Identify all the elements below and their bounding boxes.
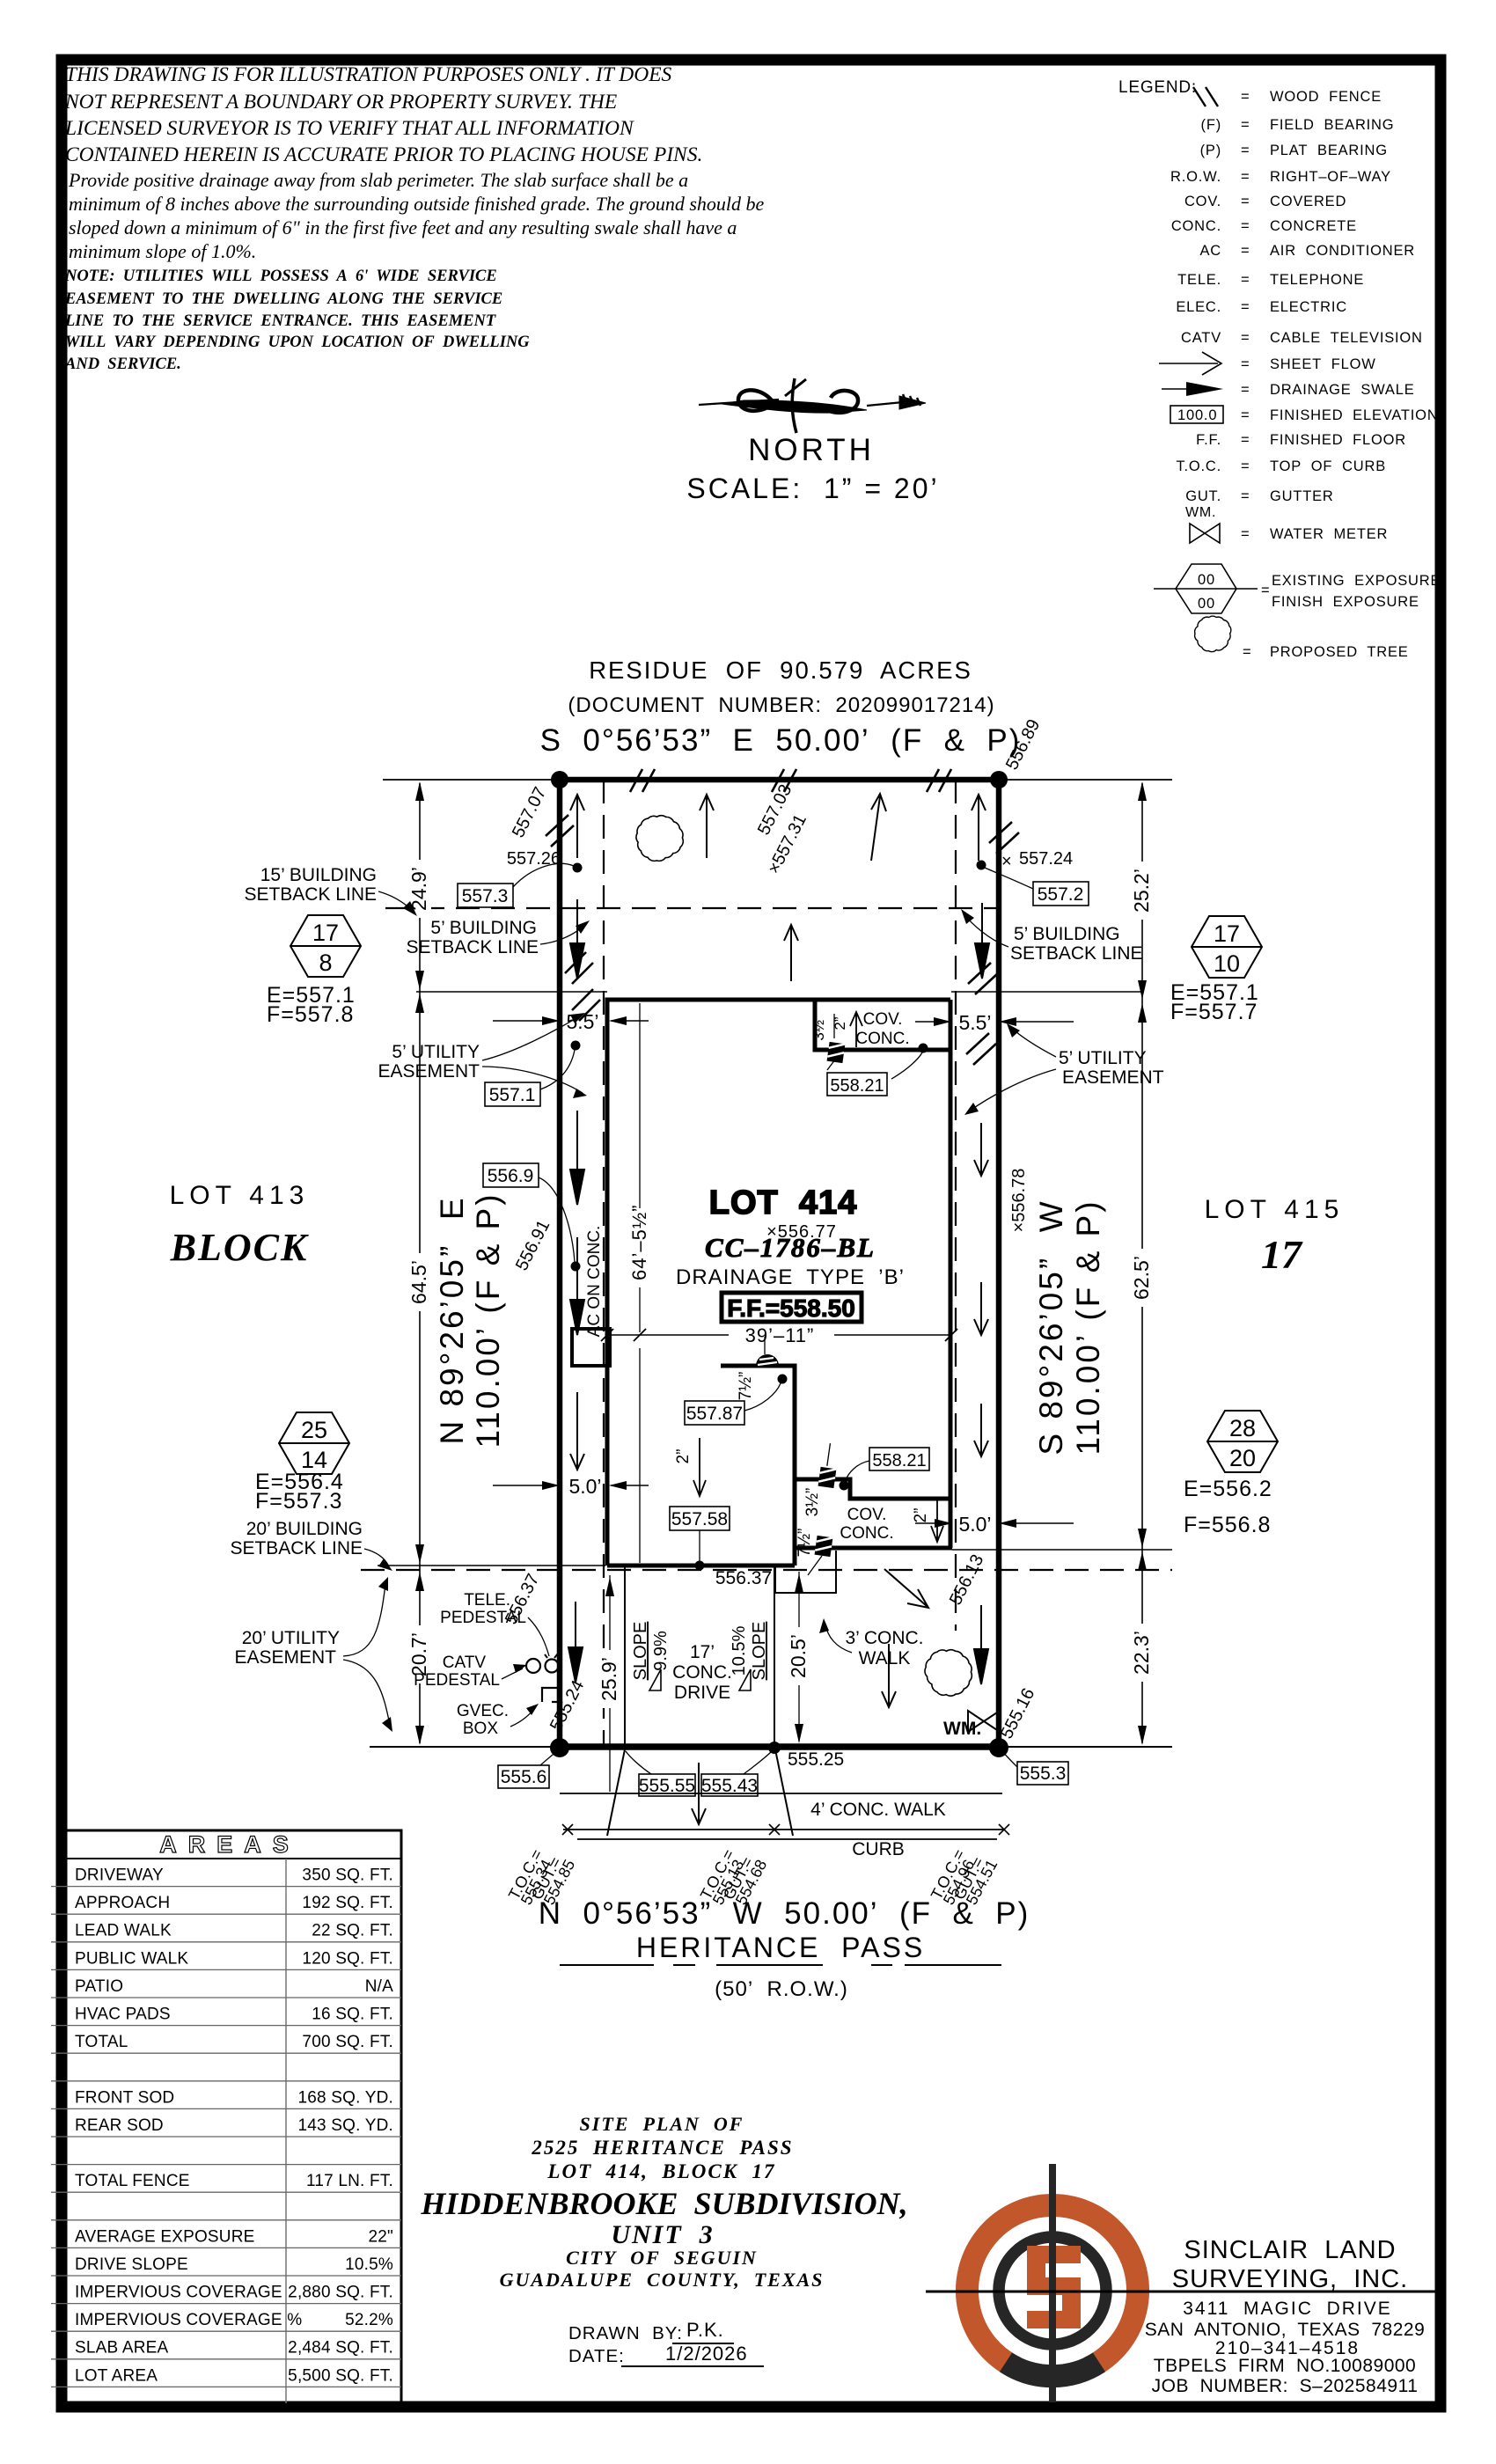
svg-text:TELE.: TELE. (1177, 272, 1221, 288)
svg-text:COV.: COV. (863, 1010, 903, 1029)
svg-text:HVAC PADS: HVAC PADS (75, 2006, 171, 2024)
svg-text:WM.: WM. (1185, 505, 1216, 520)
svg-text:E=556.2: E=556.2 (1184, 1477, 1272, 1501)
svg-text:20.7’: 20.7’ (407, 1632, 430, 1676)
svg-text:=: = (1241, 89, 1250, 105)
svg-text:16 SQ. FT.: 16 SQ. FT. (312, 2006, 393, 2024)
svg-text:=: = (1241, 243, 1250, 259)
svg-text:AC: AC (1199, 243, 1221, 259)
svg-text:N 89°26’05” E: N 89°26’05” E (434, 1195, 470, 1444)
svg-text:BLOCK: BLOCK (170, 1226, 309, 1269)
svg-text:52.2%: 52.2% (345, 2311, 393, 2329)
svg-text:T.O.C.: T.O.C. (1176, 458, 1221, 474)
svg-text:UNIT 3: UNIT 3 (611, 2220, 714, 2249)
svg-text:PROPOSED TREE: PROPOSED TREE (1270, 644, 1409, 660)
svg-text:GUADALUPE COUNTY, TEXAS: GUADALUPE COUNTY, TEXAS (500, 2269, 825, 2291)
svg-text:DRAINAGE SWALE: DRAINAGE SWALE (1270, 382, 1415, 398)
svg-text:192 SQ. FT.: 192 SQ. FT. (302, 1894, 393, 1912)
svg-text:AIR CONDITIONER: AIR CONDITIONER (1270, 243, 1415, 259)
svg-text:=: = (1243, 644, 1251, 660)
svg-text:HIDDENBROOKE SUBDIVISION,: HIDDENBROOKE SUBDIVISION, (420, 2186, 907, 2221)
svg-text:GVEC.: GVEC. (457, 1702, 509, 1720)
svg-text:EASEMENT: EASEMENT (234, 1647, 336, 1668)
svg-text:8: 8 (319, 950, 332, 976)
svg-text:CURB: CURB (852, 1839, 905, 1859)
svg-text:64’–5½”: 64’–5½” (628, 1204, 650, 1280)
svg-text:10.5%: 10.5% (345, 2255, 393, 2274)
svg-text:IMPERVIOUS COVERAGE: IMPERVIOUS COVERAGE (75, 2284, 282, 2302)
svg-text:558.21: 558.21 (872, 1451, 926, 1470)
svg-text:SHEET FLOW: SHEET FLOW (1270, 356, 1376, 372)
svg-text:LOT AREA: LOT AREA (75, 2366, 158, 2385)
svg-text:NORTH: NORTH (748, 433, 875, 467)
svg-text:25.2’: 25.2’ (1130, 869, 1153, 913)
svg-text:AND SERVICE.: AND SERVICE. (64, 356, 181, 373)
svg-text:CONC.: CONC. (855, 1030, 909, 1048)
svg-text:PEDESTAL: PEDESTAL (414, 1671, 500, 1690)
svg-text:AVERAGE EXPOSURE: AVERAGE EXPOSURE (75, 2227, 255, 2246)
svg-text:LOT 414: LOT 414 (709, 1184, 858, 1221)
svg-text:556.9: 556.9 (488, 1166, 534, 1186)
svg-text:2”: 2” (674, 1449, 693, 1464)
svg-text:5’ UTILITY: 5’ UTILITY (392, 1042, 480, 1062)
svg-text:120 SQ. FT.: 120 SQ. FT. (302, 1949, 393, 1968)
svg-text:SLOPE: SLOPE (750, 1622, 769, 1681)
svg-text:143 SQ. YD.: 143 SQ. YD. (297, 2116, 393, 2135)
svg-text:557.1: 557.1 (489, 1085, 536, 1105)
svg-text:F=557.3: F=557.3 (255, 1489, 342, 1514)
svg-text:COV.: COV. (847, 1506, 887, 1524)
svg-text:00: 00 (1198, 572, 1215, 588)
svg-text:CONC.: CONC. (672, 1662, 732, 1683)
svg-text:SETBACK LINE: SETBACK LINE (1010, 943, 1143, 964)
svg-text:10.5%: 10.5% (730, 1625, 749, 1676)
svg-text:=: = (1241, 356, 1250, 372)
svg-text:28: 28 (1229, 1415, 1256, 1441)
svg-text:LEGEND:: LEGEND: (1118, 78, 1197, 97)
svg-text:SLAB AREA: SLAB AREA (75, 2339, 168, 2358)
svg-text:RESIDUE OF 90.579 ACRES: RESIDUE OF 90.579 ACRES (589, 656, 972, 684)
svg-text:555.3: 555.3 (1020, 1764, 1067, 1784)
svg-text:FIELD BEARING: FIELD BEARING (1270, 117, 1394, 133)
svg-text:SETBACK LINE: SETBACK LINE (244, 884, 377, 905)
svg-text:558.21: 558.21 (830, 1076, 884, 1096)
svg-text:DRIVE: DRIVE (674, 1683, 730, 1703)
svg-text:minimum slope of 1.0%.: minimum slope of 1.0%. (69, 240, 256, 262)
svg-text:(F): (F) (1201, 117, 1221, 133)
svg-text:TOP OF CURB: TOP OF CURB (1270, 458, 1386, 474)
svg-text:5.5’: 5.5’ (958, 1011, 991, 1034)
svg-text:WILL VARY DEPENDING UPON L: WILL VARY DEPENDING UPON LOCATION OF DWE… (65, 334, 530, 351)
svg-text:SINCLAIR LAND: SINCLAIR LAND (1184, 2236, 1396, 2264)
svg-text:4’ CONC. WALK: 4’ CONC. WALK (810, 1800, 946, 1820)
svg-text:WM.: WM. (943, 1719, 981, 1739)
svg-text:=: = (1241, 407, 1250, 423)
svg-text:5.0’: 5.0’ (958, 1513, 991, 1536)
svg-text:=: = (1241, 143, 1250, 158)
svg-text:SCALE: 1” = 20’: SCALE: 1” = 20’ (686, 473, 939, 504)
svg-text:FRONT SOD: FRONT SOD (75, 2088, 174, 2107)
svg-text:25.9’: 25.9’ (598, 1657, 620, 1701)
svg-text:PATIO: PATIO (75, 1977, 123, 1996)
svg-text:CABLE TELEVISION: CABLE TELEVISION (1270, 330, 1423, 346)
svg-text:F.F.: F.F. (1196, 432, 1221, 448)
svg-text:HERITANCE PASS: HERITANCE PASS (636, 1932, 925, 1963)
svg-text:DRAINAGE TYPE ’B’: DRAINAGE TYPE ’B’ (676, 1265, 905, 1289)
svg-text:557.3: 557.3 (462, 886, 509, 906)
svg-text:555.6: 555.6 (501, 1767, 547, 1787)
svg-text:00: 00 (1198, 596, 1215, 612)
svg-text:=: = (1241, 432, 1250, 448)
svg-text:GUT.: GUT. (1185, 488, 1221, 504)
svg-text:JOB NUMBER: S–202584911: JOB NUMBER: S–202584911 (1152, 2376, 1419, 2396)
svg-text:P.K.: P.K. (686, 2319, 724, 2341)
svg-text:TELE.: TELE. (464, 1591, 510, 1610)
svg-text:F.F.=558.50: F.F.=558.50 (727, 1294, 855, 1322)
svg-text:S 0°56’53” E 50.00’ (F &: S 0°56’53” E 50.00’ (F & P) (540, 723, 1022, 758)
svg-text:CONC.: CONC. (840, 1524, 893, 1543)
svg-text:WOOD FENCE: WOOD FENCE (1270, 89, 1382, 105)
svg-text:20’ BUILDING: 20’ BUILDING (246, 1519, 363, 1539)
svg-text:ELEC.: ELEC. (1176, 299, 1221, 315)
svg-text:3½”: 3½” (803, 1488, 822, 1517)
svg-text:SLOPE: SLOPE (631, 1622, 650, 1681)
svg-text:117 LN. FT.: 117 LN. FT. (306, 2172, 393, 2190)
svg-text:IMPERVIOUS COVERAGE %: IMPERVIOUS COVERAGE % (75, 2311, 302, 2329)
svg-text:15’ BUILDING: 15’ BUILDING (260, 865, 377, 885)
svg-text:LICENSED SURVEYOR IS TO VERIFY: LICENSED SURVEYOR IS TO VERIFY THAT ALL … (64, 117, 634, 140)
svg-text:CITY OF SEGUIN: CITY OF SEGUIN (566, 2247, 758, 2269)
svg-text:2525 HERITANCE PASS: 2525 HERITANCE PASS (531, 2137, 793, 2159)
svg-text:DRAWN BY:: DRAWN BY: (568, 2323, 683, 2343)
svg-text:(DOCUMENT NUMBER: 2020990172: (DOCUMENT NUMBER: 202099017214) (568, 693, 994, 717)
svg-text:PLAT BEARING: PLAT BEARING (1270, 143, 1388, 158)
svg-text:557.2: 557.2 (1038, 884, 1084, 905)
svg-text:ELECTRIC: ELECTRIC (1270, 299, 1347, 315)
svg-text:22 SQ. FT.: 22 SQ. FT. (312, 1922, 393, 1940)
svg-text:PUBLIC WALK: PUBLIC WALK (75, 1949, 188, 1968)
svg-text:CONTAINED HEREIN IS ACCURATE P: CONTAINED HEREIN IS ACCURATE PRIOR TO PL… (65, 143, 702, 166)
svg-text:SETBACK LINE: SETBACK LINE (230, 1538, 363, 1558)
svg-text:FINISHED ELEVATION: FINISHED ELEVATION (1270, 407, 1439, 423)
svg-text:APPROACH: APPROACH (75, 1894, 170, 1912)
svg-text:2”: 2” (912, 1508, 930, 1523)
svg-text:350 SQ. FT.: 350 SQ. FT. (302, 1866, 393, 1885)
svg-text:557.87: 557.87 (686, 1404, 743, 1424)
svg-text:5’ UTILITY: 5’ UTILITY (1059, 1048, 1147, 1068)
svg-text:2,880 SQ. FT.: 2,880 SQ. FT. (288, 2284, 393, 2302)
svg-text:7½”: 7½” (737, 1372, 755, 1401)
svg-text:EASEMENT TO THE DWELLING A: EASEMENT TO THE DWELLING ALONG THE SERVI… (64, 290, 502, 308)
svg-text:700 SQ. FT.: 700 SQ. FT. (302, 2033, 393, 2051)
svg-text:SAN ANTONIO, TEXAS 78229: SAN ANTONIO, TEXAS 78229 (1145, 2320, 1426, 2340)
svg-text:SURVEYING, INC.: SURVEYING, INC. (1172, 2265, 1408, 2293)
svg-text:(50’ R.O.W.): (50’ R.O.W.) (715, 1977, 848, 2001)
svg-text:39’–11”: 39’–11” (745, 1324, 815, 1346)
svg-text:9.9%: 9.9% (651, 1631, 671, 1671)
svg-text:LINE TO THE SERVICE ENTRAN: LINE TO THE SERVICE ENTRANCE. THIS EASEM… (64, 312, 496, 330)
svg-text:557.24: 557.24 (1019, 849, 1073, 869)
svg-text:FINISHED FLOOR: FINISHED FLOOR (1270, 432, 1406, 448)
svg-text:sloped down a minimum of 6" in: sloped down a minimum of 6" in the first… (69, 216, 737, 238)
svg-text:CATV: CATV (1181, 330, 1221, 346)
svg-text:20.5’: 20.5’ (787, 1634, 810, 1678)
svg-text:64.5’: 64.5’ (407, 1260, 430, 1304)
svg-text:CONCRETE: CONCRETE (1270, 218, 1357, 234)
svg-text:AREAS: AREAS (159, 1831, 300, 1858)
svg-text:22": 22" (369, 2227, 393, 2246)
svg-text:=: = (1241, 169, 1250, 185)
svg-text:17’: 17’ (690, 1642, 715, 1662)
svg-text:PEDESTAL: PEDESTAL (440, 1609, 526, 1627)
svg-text:LOT 413: LOT 413 (170, 1181, 310, 1210)
svg-text:7½”: 7½” (796, 1529, 814, 1558)
svg-text:556.37: 556.37 (715, 1568, 772, 1588)
svg-text:F=557.8: F=557.8 (267, 1002, 354, 1027)
svg-text:17: 17 (1261, 1232, 1303, 1277)
svg-text:DRIVE SLOPE: DRIVE SLOPE (75, 2255, 188, 2274)
svg-text:=: = (1241, 272, 1250, 288)
svg-text:100.0: 100.0 (1177, 407, 1217, 423)
svg-text:25: 25 (301, 1417, 327, 1443)
svg-text:=: = (1241, 488, 1250, 504)
svg-text:555.55: 555.55 (639, 1776, 695, 1796)
svg-text:TBPELS FIRM NO.10089000: TBPELS FIRM NO.10089000 (1154, 2356, 1416, 2376)
svg-text:62.5’: 62.5’ (1130, 1256, 1153, 1300)
svg-text:557.58: 557.58 (671, 1509, 728, 1529)
svg-text:LOT 414, BLOCK 17: LOT 414, BLOCK 17 (546, 2160, 775, 2182)
svg-text:GUTTER: GUTTER (1270, 488, 1334, 504)
svg-text:BOX: BOX (463, 1720, 498, 1738)
svg-text:20’ UTILITY: 20’ UTILITY (242, 1628, 340, 1648)
svg-text:EASEMENT: EASEMENT (378, 1061, 480, 1082)
svg-text:NOTE: UTILITIES WILL POSSES: NOTE: UTILITIES WILL POSSESS A 6' WIDE S… (64, 268, 497, 285)
svg-text:R.O.W.: R.O.W. (1170, 169, 1221, 185)
svg-text:SETBACK LINE: SETBACK LINE (406, 937, 539, 957)
svg-text:17: 17 (1214, 920, 1240, 947)
svg-text:×: × (1001, 852, 1012, 871)
svg-text:5’ BUILDING: 5’ BUILDING (1014, 924, 1120, 944)
svg-text:minimum of 8 inches above the: minimum of 8 inches above the surroundin… (69, 193, 765, 215)
svg-text:CONC.: CONC. (1171, 218, 1221, 234)
svg-text:110.00’ (F & P): 110.00’ (F & P) (1070, 1199, 1106, 1455)
svg-text:=: = (1261, 583, 1270, 598)
svg-text:168 SQ. YD.: 168 SQ. YD. (297, 2088, 393, 2107)
svg-text:2,484 SQ. FT.: 2,484 SQ. FT. (288, 2339, 393, 2358)
svg-text:110.00’ (F & P): 110.00’ (F & P) (470, 1192, 506, 1448)
svg-text:NOT REPRESENT A BOUNDARY OR PR: NOT REPRESENT A BOUNDARY OR PROPERTY SUR… (64, 91, 617, 114)
svg-text:TOTAL FENCE: TOTAL FENCE (75, 2172, 190, 2190)
svg-text:=: = (1241, 330, 1250, 346)
svg-text:CC–1786–BL: CC–1786–BL (705, 1232, 876, 1263)
svg-text:F=557.7: F=557.7 (1170, 1000, 1258, 1024)
svg-text:20: 20 (1229, 1445, 1256, 1471)
svg-text:555.25: 555.25 (788, 1749, 844, 1770)
svg-text:WATER METER: WATER METER (1270, 526, 1388, 542)
svg-text:TOTAL: TOTAL (75, 2033, 128, 2051)
svg-text:22.3’: 22.3’ (1130, 1631, 1153, 1675)
svg-text:REAR SOD: REAR SOD (75, 2116, 164, 2135)
svg-text:3’ CONC.: 3’ CONC. (845, 1628, 923, 1648)
svg-text:=: = (1241, 382, 1250, 398)
svg-text:EASEMENT: EASEMENT (1062, 1067, 1164, 1088)
svg-text:EXISTING EXPOSURE: EXISTING EXPOSURE (1272, 573, 1441, 589)
svg-text:DRIVEWAY: DRIVEWAY (75, 1866, 164, 1885)
svg-text:17: 17 (312, 920, 339, 946)
svg-text:RIGHT–OF–WAY: RIGHT–OF–WAY (1270, 169, 1391, 185)
svg-text:=: = (1241, 117, 1250, 133)
svg-text:LEAD WALK: LEAD WALK (75, 1922, 172, 1940)
svg-text:=: = (1241, 194, 1250, 209)
svg-text:3½”: 3½” (810, 1015, 827, 1041)
svg-text:N/A: N/A (365, 1977, 393, 1996)
svg-text:557.26: 557.26 (507, 849, 561, 869)
svg-text:LOT 415: LOT 415 (1205, 1195, 1345, 1224)
svg-text:Provide positive drainage away: Provide positive drainage away from slab… (68, 169, 688, 191)
svg-text:=: = (1241, 218, 1250, 234)
svg-text:555.43: 555.43 (701, 1776, 758, 1796)
svg-text:=: = (1241, 458, 1250, 474)
svg-text:CATV: CATV (443, 1654, 487, 1672)
svg-text:THIS DRAWING IS FOR ILLUSTRATI: THIS DRAWING IS FOR ILLUSTRATION PURPOSE… (65, 63, 672, 86)
svg-text:=: = (1241, 299, 1250, 315)
svg-text:DATE:: DATE: (568, 2346, 625, 2366)
svg-text:5.0’: 5.0’ (568, 1475, 601, 1498)
svg-text:N 0°56’53” W 50.00’ (F &: N 0°56’53” W 50.00’ (F & P) (539, 1896, 1030, 1931)
svg-text:5’ BUILDING: 5’ BUILDING (430, 918, 537, 938)
svg-text:(P): (P) (1200, 143, 1221, 158)
svg-text:SITE PLAN OF: SITE PLAN OF (580, 2113, 744, 2135)
svg-text:TELEPHONE: TELEPHONE (1270, 272, 1364, 288)
svg-text:×556.78: ×556.78 (1009, 1169, 1029, 1233)
svg-text:COVERED: COVERED (1270, 194, 1346, 209)
svg-text:AC ON CONC.: AC ON CONC. (585, 1226, 604, 1338)
svg-text:3411 MAGIC DRIVE: 3411 MAGIC DRIVE (1183, 2299, 1392, 2319)
svg-text:10: 10 (1214, 950, 1240, 977)
svg-text:=: = (1241, 526, 1250, 542)
svg-text:WALK: WALK (859, 1648, 911, 1668)
svg-text:1/2/2026: 1/2/2026 (665, 2343, 748, 2365)
svg-text:F=556.8: F=556.8 (1184, 1513, 1271, 1537)
svg-text:S 89°26’05” W: S 89°26’05” W (1033, 1199, 1069, 1455)
svg-text:COV.: COV. (1184, 194, 1221, 209)
svg-text:FINISH EXPOSURE: FINISH EXPOSURE (1272, 594, 1419, 610)
svg-text:5,500 SQ. FT.: 5,500 SQ. FT. (288, 2366, 393, 2385)
